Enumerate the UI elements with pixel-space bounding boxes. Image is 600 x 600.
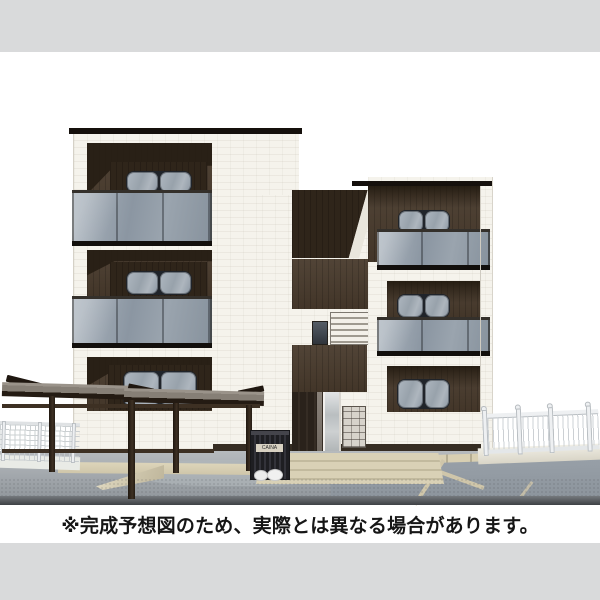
center-core-mid-panel (292, 345, 367, 392)
window-pane (425, 380, 450, 408)
carport-post-2 (128, 400, 135, 499)
center-core-upper-panel (292, 259, 370, 309)
window-pane (425, 295, 450, 317)
trash-bag (254, 470, 268, 481)
right-tower-f2-window (397, 294, 450, 318)
fence-bars (482, 413, 599, 450)
ground-shadow-edge (0, 496, 600, 505)
carport-canopy-1 (2, 382, 138, 400)
mesh-fence-left (0, 421, 80, 465)
right-tower-f1-window (397, 379, 450, 409)
left-tower-f2-glass-balustrade (72, 296, 212, 348)
window-pane (127, 172, 158, 192)
trash-bag (267, 469, 283, 481)
carport-post-3 (173, 403, 179, 473)
entrance-sidelight-glass (323, 392, 341, 458)
left-tower-f3-glass-balustrade (72, 190, 212, 246)
window-pane (160, 272, 191, 294)
right-tower-corner-line (480, 186, 481, 412)
louver-vent (330, 312, 369, 345)
carport-lower-rail (2, 449, 214, 453)
disclaimer-text: ※完成予想図のため、実際とは異なる場合があります。 (0, 505, 600, 543)
entrance-door-frame (317, 392, 322, 458)
right-tower-f2-glass-balustrade (377, 317, 490, 356)
artists-impression-rendering: CAINA ※完成予想図のため、実際とは異なる場合があります。 (0, 0, 600, 600)
right-tower-f3-glass-balustrade (377, 229, 490, 270)
carport-post-1 (49, 396, 55, 472)
left-tower-roofline (69, 128, 302, 134)
window-pane (398, 380, 423, 408)
left-tower-f2-window (126, 271, 192, 295)
mailbox-unit (342, 406, 366, 448)
window-pane (398, 295, 423, 317)
trash-box-label: CAINA (256, 444, 283, 452)
stairwell-slit-window (312, 321, 328, 345)
window-pane (160, 172, 191, 192)
window-pane (127, 272, 158, 294)
top-letterbox-band (0, 0, 600, 52)
bottom-letterbox-band (0, 543, 600, 600)
mesh-fence-right (482, 401, 600, 460)
